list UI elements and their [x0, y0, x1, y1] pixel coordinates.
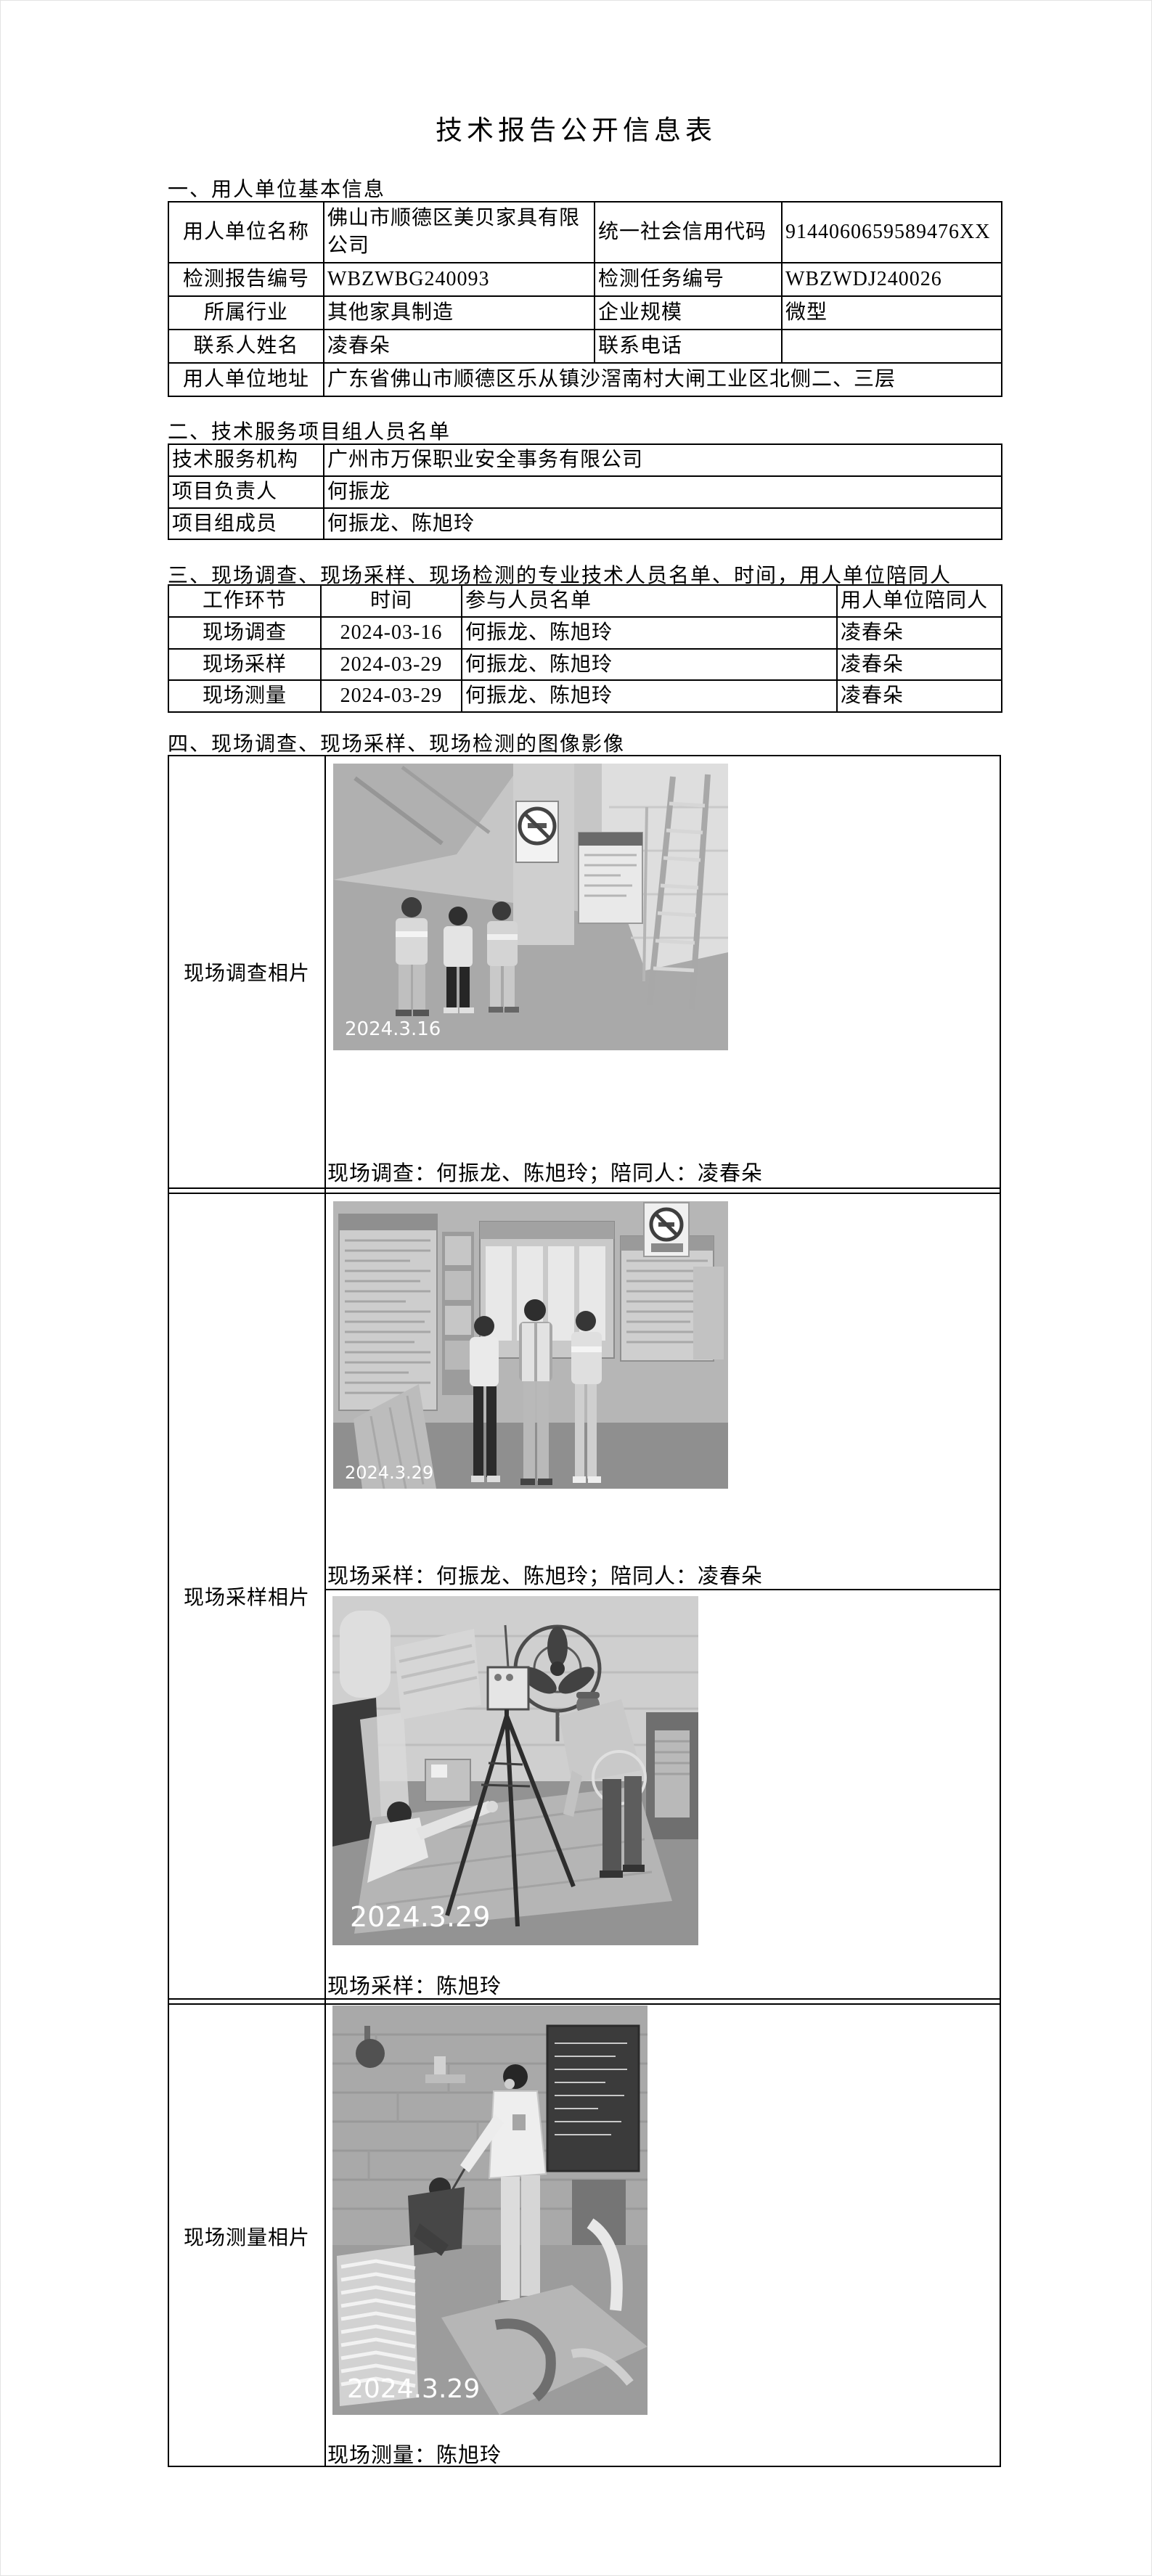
section-heading-team: 二、技术服务项目组人员名单: [168, 416, 451, 445]
column-header: 时间: [321, 585, 462, 617]
table-row: 检测报告编号 WBZWBG240093 检测任务编号 WBZWDJ240026: [168, 263, 1002, 296]
table-column-divider: [324, 756, 326, 2466]
table-row: 项目组成员 何振龙、陈旭玲: [168, 508, 1002, 540]
work-step: 现场采样: [168, 649, 321, 681]
document-page: 技术报告公开信息表 一、用人单位基本信息 用人单位名称 佛山市顺德区美贝家具有限…: [0, 0, 1152, 2576]
photo-caption: 现场采样：何振龙、陈旭玲；陪同人：凌春朵: [327, 1559, 763, 1590]
work-staff: 何振龙、陈旭玲: [462, 680, 837, 712]
field-value: 凌春朵: [324, 330, 595, 363]
photo-date-stamp: 2024.3.29: [350, 1901, 490, 1933]
photo-date-stamp: 2024.3.29: [347, 2374, 480, 2404]
column-header: 工作环节: [168, 585, 321, 617]
work-staff: 何振龙、陈旭玲: [462, 649, 837, 681]
wall-box: [425, 1759, 470, 1802]
photo-site-survey: 2024.3.16: [333, 764, 728, 1050]
field-label: 项目组成员: [168, 508, 324, 540]
table-row: 用人单位名称 佛山市顺德区美贝家具有限公司 统一社会信用代码 914406065…: [168, 202, 1002, 263]
field-value: 佛山市顺德区美贝家具有限公司: [324, 202, 595, 263]
photo-row-label-sampling: 现场采样相片: [169, 1194, 324, 1998]
table-row: 现场采样 2024-03-29 何振龙、陈旭玲 凌春朵: [168, 649, 1002, 681]
field-label: 检测任务编号: [595, 263, 782, 296]
field-label: 所属行业: [168, 296, 324, 330]
no-smoking-sign: [516, 801, 558, 862]
table-row: 现场测量 2024-03-29 何振龙、陈旭玲 凌春朵: [168, 680, 1002, 712]
field-value: 广东省佛山市顺德区乐从镇沙滘南村大闸工业区北侧二、三层: [324, 363, 1002, 396]
field-label: 检测报告编号: [168, 263, 324, 296]
field-value: WBZWBG240093: [324, 263, 595, 296]
photo-row-label-measuring: 现场测量相片: [169, 2005, 324, 2467]
photo-date-stamp: 2024.3.29: [345, 1463, 433, 1483]
photo-date-stamp: 2024.3.16: [345, 1018, 441, 1040]
work-escort: 凌春朵: [837, 617, 1002, 649]
wall-chart: [339, 1214, 437, 1410]
work-staff: 何振龙、陈旭玲: [462, 617, 837, 649]
table-row-divider: [169, 1998, 1000, 2000]
doorway: [646, 1712, 698, 1839]
work-date: 2024-03-29: [321, 649, 462, 681]
table-row-divider: [169, 1187, 1000, 1189]
table-row: 项目负责人 何振龙: [168, 476, 1002, 508]
wall-poster: [693, 1267, 724, 1359]
photo-sampling-tripod: 2024.3.29: [332, 1596, 698, 1945]
photo-caption: 现场测量：陈旭玲: [327, 2438, 502, 2469]
field-value: 微型: [782, 296, 1002, 330]
table-row: 用人单位地址 广东省佛山市顺德区乐从镇沙滘南村大闸工业区北侧二、三层: [168, 363, 1002, 396]
table-row: 现场调查 2024-03-16 何振龙、陈旭玲 凌春朵: [168, 617, 1002, 649]
work-escort: 凌春朵: [837, 680, 1002, 712]
photo-measuring: 2024.3.29: [332, 2005, 648, 2415]
table-row: 所属行业 其他家具制造 企业规模 微型: [168, 296, 1002, 330]
field-label: 联系人姓名: [168, 330, 324, 363]
wall-poster: [579, 833, 642, 923]
basic-info-table: 用人单位名称 佛山市顺德区美贝家具有限公司 统一社会信用代码 914406065…: [168, 201, 1002, 397]
table-row: 技术服务机构 广州市万保职业安全事务有限公司: [168, 444, 1002, 476]
work-date: 2024-03-29: [321, 680, 462, 712]
table-row: 联系人姓名 凌春朵 联系电话: [168, 330, 1002, 363]
field-value: 9144060659589476XX: [782, 202, 1002, 263]
photo-sampling-group: 2024.3.29: [333, 1201, 728, 1489]
field-label: 技术服务机构: [168, 444, 324, 476]
field-label: 用人单位地址: [168, 363, 324, 396]
field-value: 何振龙、陈旭玲: [324, 508, 1002, 540]
field-label: 用人单位名称: [168, 202, 324, 263]
field-value: 广州市万保职业安全事务有限公司: [324, 444, 1002, 476]
field-value: [782, 330, 1002, 363]
section-heading-basic-info: 一、用人单位基本信息: [168, 173, 385, 203]
field-label: 统一社会信用代码: [595, 202, 782, 263]
column-header: 参与人员名单: [462, 585, 837, 617]
work-step: 现场调查: [168, 617, 321, 649]
work-date: 2024-03-16: [321, 617, 462, 649]
field-value: WBZWDJ240026: [782, 263, 1002, 296]
table-header-row: 工作环节 时间 参与人员名单 用人单位陪同人: [168, 585, 1002, 617]
field-label: 项目负责人: [168, 476, 324, 508]
photos-table: 现场调查相片 现场采样相片 现场测量相片: [168, 755, 1001, 2467]
field-label: 企业规模: [595, 296, 782, 330]
work-step: 现场测量: [168, 680, 321, 712]
field-value: 其他家具制造: [324, 296, 595, 330]
field-value: 何振龙: [324, 476, 1002, 508]
photo-caption: 现场调查：何振龙、陈旭玲；陪同人：凌春朵: [327, 1156, 763, 1187]
no-smoking-sign: [644, 1203, 689, 1256]
photo-strip: [442, 1232, 474, 1395]
team-table: 技术服务机构 广州市万保职业安全事务有限公司 项目负责人 何振龙 项目组成员 何…: [168, 443, 1002, 540]
blackboard: [547, 2026, 639, 2171]
work-escort: 凌春朵: [837, 649, 1002, 681]
photo-caption: 现场采样：陈旭玲: [327, 1969, 502, 2000]
site-work-table: 工作环节 时间 参与人员名单 用人单位陪同人 现场调查 2024-03-16 何…: [168, 584, 1002, 713]
section-heading-photos: 四、现场调查、现场采样、现场检测的图像影像: [168, 728, 625, 757]
column-header: 用人单位陪同人: [837, 585, 1002, 617]
page-title: 技术报告公开信息表: [1, 108, 1151, 147]
field-label: 联系电话: [595, 330, 782, 363]
photo-row-label-survey: 现场调查相片: [169, 756, 324, 1187]
